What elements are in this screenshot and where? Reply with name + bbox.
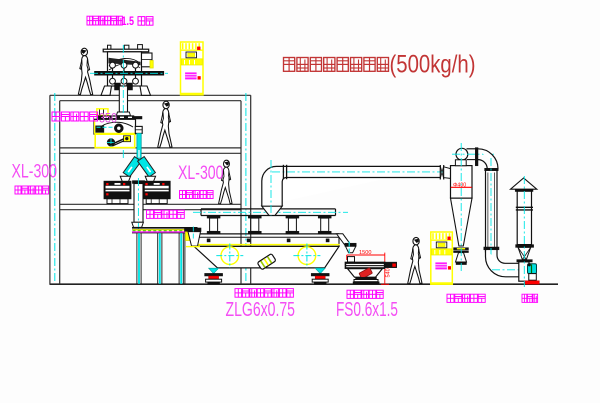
svg-text:ZLG6x0.75: ZLG6x0.75 (226, 299, 296, 321)
svg-text:XL-300: XL-300 (178, 163, 224, 184)
svg-text:1.5: 1.5 (122, 14, 135, 28)
svg-text:1500: 1500 (359, 250, 371, 256)
svg-text:Φ400: Φ400 (453, 182, 466, 188)
svg-text:350: 350 (99, 110, 117, 126)
svg-text:XL-300: XL-300 (12, 162, 58, 183)
svg-text:FS0.6x1.5: FS0.6x1.5 (336, 299, 398, 321)
svg-text:(500kg/h): (500kg/h) (390, 51, 476, 79)
svg-text:540: 540 (386, 268, 392, 277)
